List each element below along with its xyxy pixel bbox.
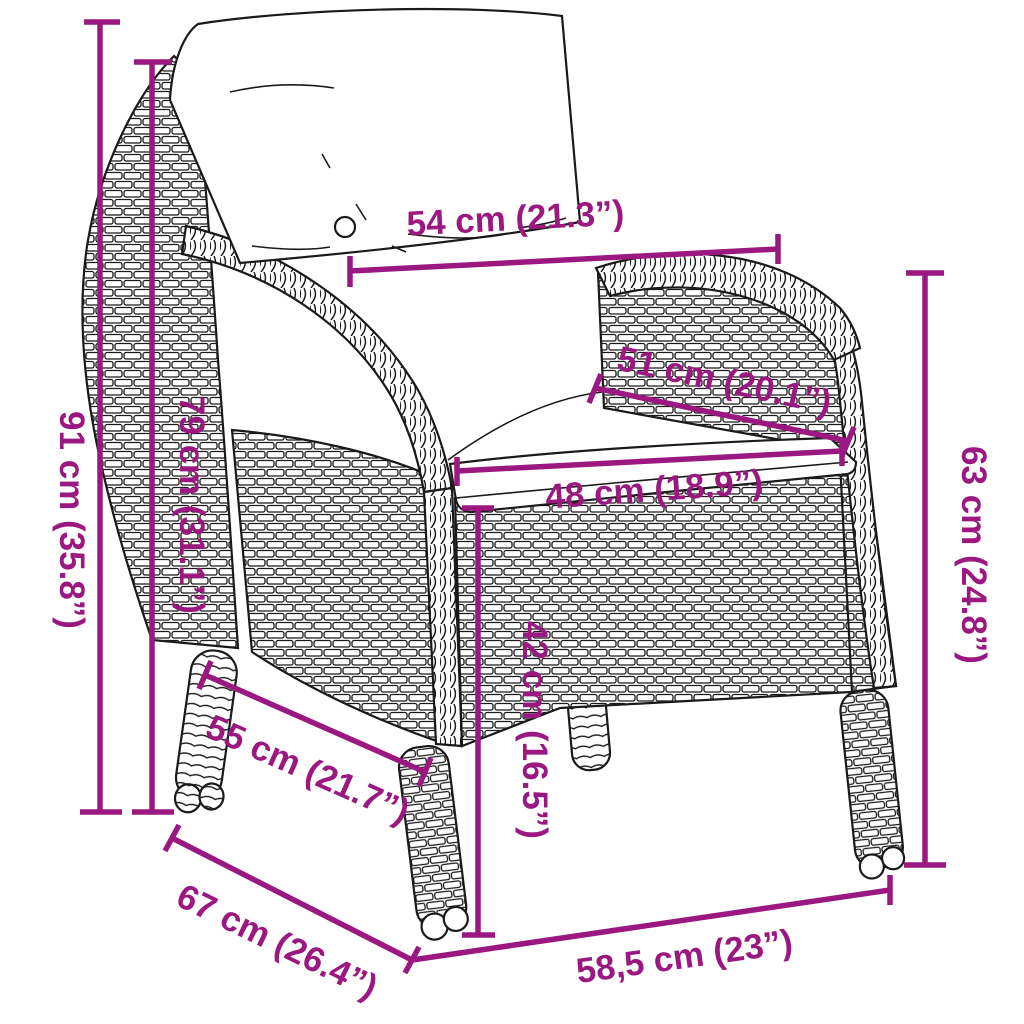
dim-line-armrest-height — [904, 273, 946, 865]
diagram-canvas: 91 cm (35.8”) 79 cm (31.1”) 54 cm (21.3”… — [0, 0, 1024, 1024]
cushion-button — [335, 217, 355, 237]
dim-label-seat-height: 42 cm (16.5”) — [515, 621, 554, 839]
chair-leg-front-center — [397, 744, 470, 942]
dimension-diagram: 91 cm (35.8”) 79 cm (31.1”) 54 cm (21.3”… — [0, 0, 1024, 1024]
chair-inner-back-edge — [448, 392, 602, 460]
dim-label-armrest-height: 63 cm (24.8”) — [954, 446, 993, 664]
dim-label-inner-depth: 55 cm (21.7”) — [200, 707, 415, 831]
dim-label-backrest-height: 79 cm (31.1”) — [172, 396, 211, 614]
chair-leg-back-right — [839, 688, 906, 880]
dim-label-height-total: 91 cm (35.8”) — [52, 411, 91, 629]
chair-left-lower-body — [232, 430, 448, 745]
dim-label-total-depth: 67 cm (26.4”) — [171, 876, 384, 1007]
